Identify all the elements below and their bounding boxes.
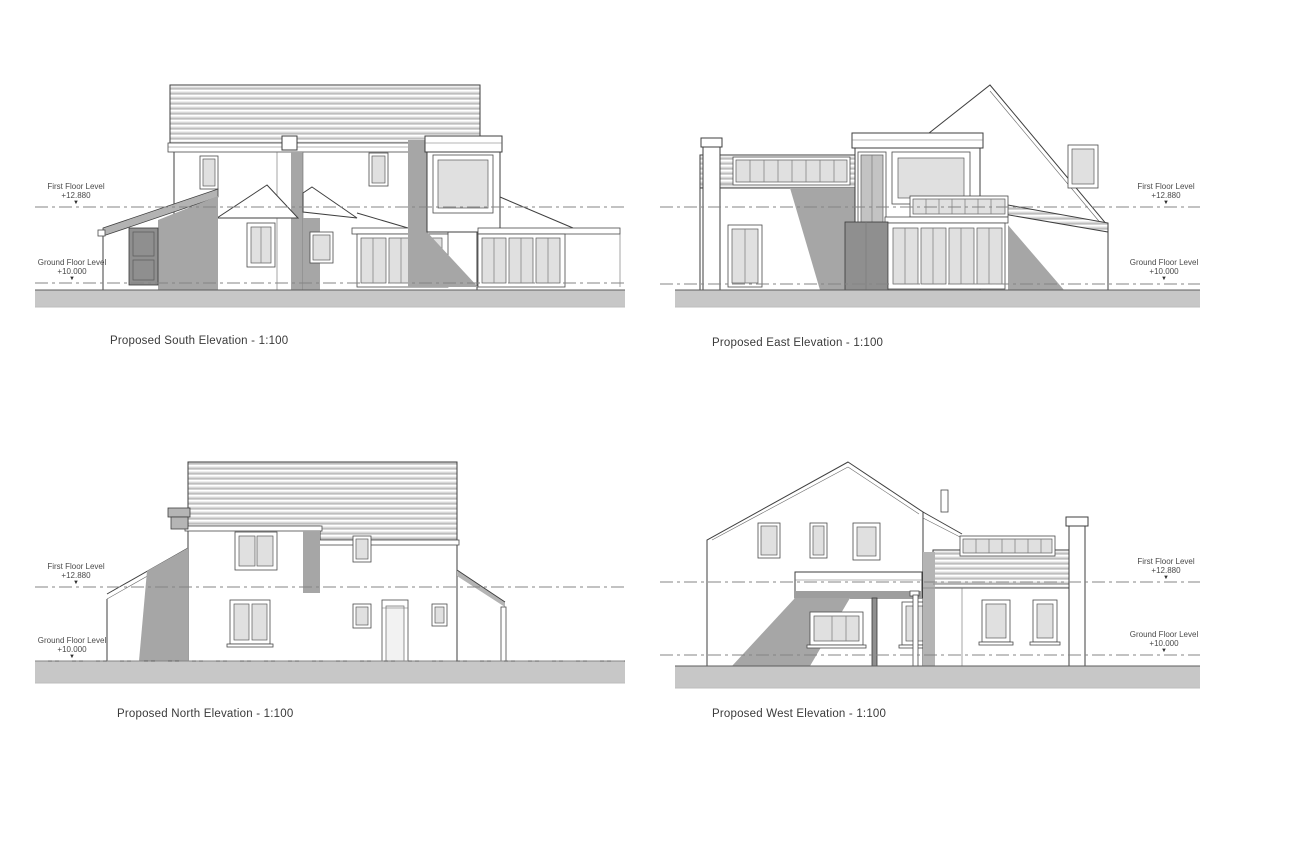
west-building [707, 462, 1088, 666]
east-ground [675, 290, 1200, 307]
level-marker-icon: ▼ [30, 200, 122, 207]
drawing-sheet: Proposed South Elevation - 1:100 Propose… [0, 0, 1300, 844]
level-label-ground-floor-south: Ground Floor Level +10.000 ▼ [26, 258, 118, 283]
level-marker-icon: ▼ [26, 276, 118, 283]
north-downpipe [501, 607, 506, 661]
level-label-text: Ground Floor Level [26, 636, 118, 645]
level-marker-icon: ▼ [26, 654, 118, 661]
level-label-first-floor-north: First Floor Level +12.880 ▼ [30, 562, 122, 587]
south-elevation-drawing [35, 60, 625, 310]
north-door [382, 600, 408, 661]
south-entrance-door [129, 228, 158, 285]
level-label-text: Ground Floor Level [1118, 258, 1210, 267]
east-chimney [703, 146, 720, 290]
east-folding-doors [888, 223, 1005, 289]
level-label-first-floor-east: First Floor Level +12.880 ▼ [1120, 182, 1212, 207]
level-label-text: First Floor Level [30, 182, 122, 191]
north-chimney [168, 508, 190, 517]
north-ground [35, 661, 625, 683]
level-label-first-floor-south: First Floor Level +12.880 ▼ [30, 182, 122, 207]
north-right-lean-to [457, 570, 506, 661]
level-marker-icon: ▼ [1120, 575, 1212, 582]
level-value: +10.000 [26, 645, 118, 654]
east-clerestory-band [910, 196, 1008, 217]
level-marker-icon: ▼ [1120, 200, 1212, 207]
west-elevation-title: Proposed West Elevation - 1:100 [712, 708, 886, 720]
level-value: +10.000 [1118, 639, 1210, 648]
level-marker-icon: ▼ [1118, 276, 1210, 283]
level-label-text: First Floor Level [1120, 182, 1212, 191]
level-label-text: Ground Floor Level [1118, 630, 1210, 639]
east-elevation-title: Proposed East Elevation - 1:100 [712, 337, 883, 349]
level-marker-icon: ▼ [30, 580, 122, 587]
north-building [107, 462, 506, 661]
level-label-text: First Floor Level [1120, 557, 1212, 566]
east-rooflight-band-left [733, 157, 850, 185]
level-value: +10.000 [1118, 267, 1210, 276]
north-elevation-drawing [35, 430, 625, 690]
level-value: +12.880 [30, 571, 122, 580]
south-elevation-title: Proposed South Elevation - 1:100 [110, 335, 288, 347]
east-glazed-door [845, 222, 888, 290]
level-label-text: First Floor Level [30, 562, 122, 571]
west-ground [675, 666, 1200, 688]
west-right-wing [923, 517, 1088, 666]
level-label-ground-floor-east: Ground Floor Level +10.000 ▼ [1118, 258, 1210, 283]
west-canopy-post [872, 598, 877, 666]
level-value: +12.880 [1120, 566, 1212, 575]
south-ground [35, 290, 625, 307]
level-label-text: Ground Floor Level [26, 258, 118, 267]
level-marker-icon: ▼ [1118, 648, 1210, 655]
west-chimney [1069, 525, 1085, 666]
level-label-ground-floor-north: Ground Floor Level +10.000 ▼ [26, 636, 118, 661]
level-label-ground-floor-west: Ground Floor Level +10.000 ▼ [1118, 630, 1210, 655]
north-elevation-title: Proposed North Elevation - 1:100 [117, 708, 293, 720]
level-value: +12.880 [1120, 191, 1212, 200]
south-building [98, 85, 620, 290]
west-first-floor-windows [758, 523, 880, 560]
south-chimney [282, 136, 297, 150]
level-value: +10.000 [26, 267, 118, 276]
level-label-first-floor-west: First Floor Level +12.880 ▼ [1120, 557, 1212, 582]
south-folding-doors-right [478, 234, 565, 287]
level-value: +12.880 [30, 191, 122, 200]
east-building [700, 85, 1108, 290]
